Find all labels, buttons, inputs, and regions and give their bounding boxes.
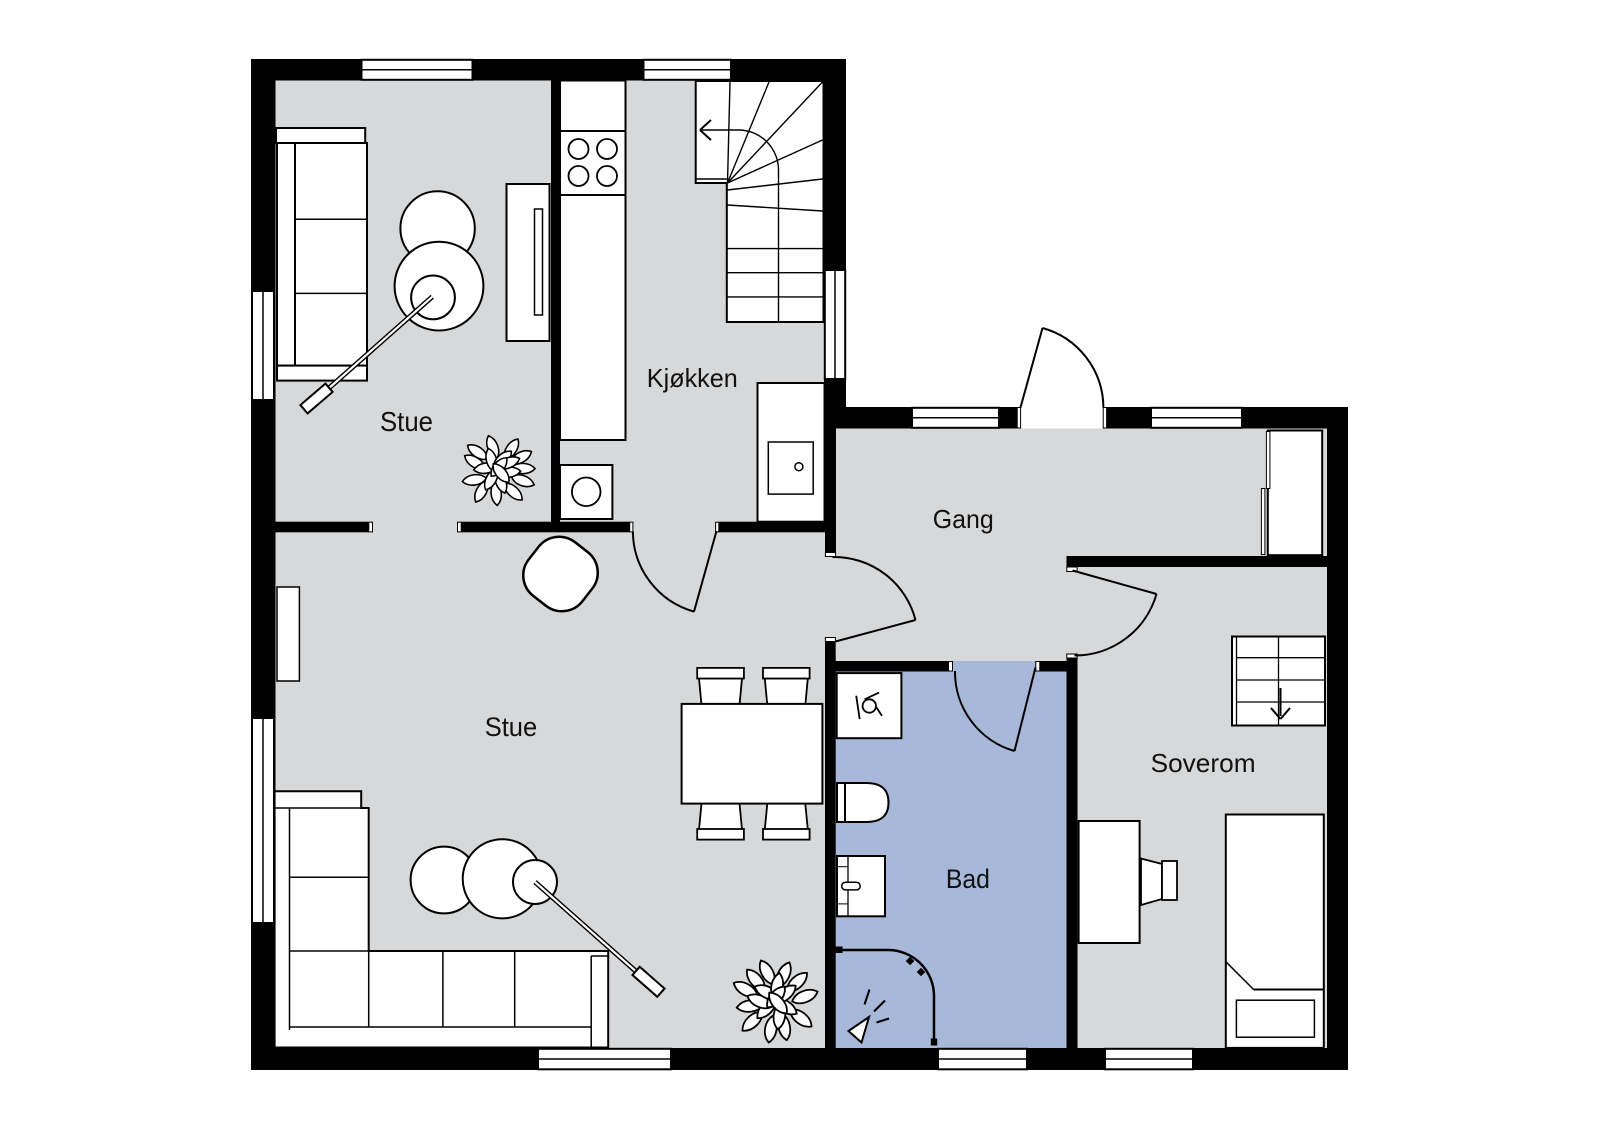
svg-text:Soverom: Soverom (1151, 748, 1256, 778)
svg-text:Gang: Gang (933, 504, 994, 534)
svg-text:Stue: Stue (485, 712, 538, 742)
svg-text:Stue: Stue (380, 406, 433, 437)
svg-text:Kjøkken: Kjøkken (647, 363, 738, 393)
svg-text:Bad: Bad (946, 864, 990, 894)
